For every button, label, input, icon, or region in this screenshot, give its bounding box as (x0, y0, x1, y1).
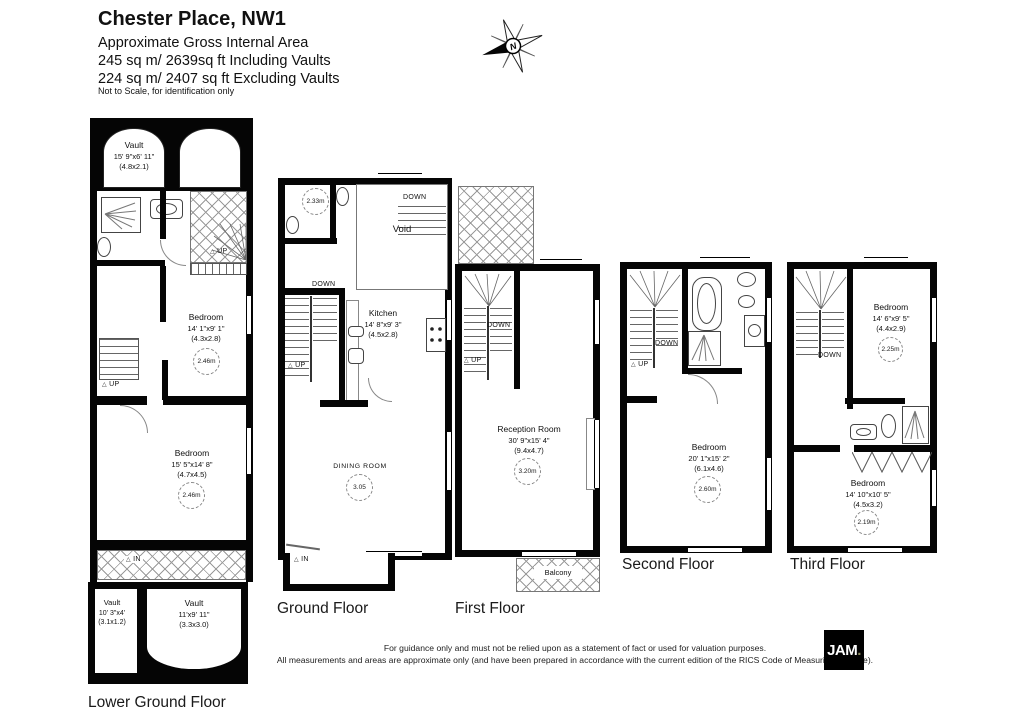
toilet (881, 414, 896, 438)
bathtub (692, 277, 722, 331)
ceiling-height-circle: 2.19m (854, 510, 879, 535)
gross-internal-area-label: Approximate Gross Internal Area (98, 34, 340, 52)
shower-tray (902, 406, 929, 444)
wall (285, 238, 337, 244)
kitchen-appliance (348, 326, 364, 337)
gf-down-top-label: DOWN (403, 194, 426, 201)
void-label: Void (366, 224, 438, 235)
terrace-up-label: △ UP (210, 248, 228, 255)
window (700, 257, 750, 263)
tf-stairs-down-label: DOWN (818, 352, 841, 359)
stair-rail (653, 308, 655, 368)
wardrobe-hanging-icon (852, 452, 932, 478)
window (848, 547, 902, 553)
lg-stairs-up-label: △ UP (102, 381, 120, 388)
disclaimer-line2: All measurements and areas are approxima… (160, 654, 990, 666)
stairs (313, 298, 337, 346)
wall (97, 396, 147, 405)
lg-entrance-label: △ IN (124, 556, 143, 563)
stair-fan (463, 272, 515, 308)
ceiling-height-circle: 3.20m (514, 458, 541, 485)
scale-note: Not to Scale, for identification only (98, 86, 234, 96)
window (378, 173, 422, 179)
jam-logo-text: JAM (827, 642, 857, 659)
kitchen-appliance (348, 348, 364, 364)
wall (845, 398, 905, 404)
disclaimer-line1: For guidance only and must not be relied… (160, 642, 990, 654)
stair-rail (819, 310, 821, 358)
wall (163, 396, 246, 405)
vault-top-right-room (179, 128, 241, 188)
compass-rose-icon: N (478, 14, 548, 80)
window (522, 551, 576, 557)
wall (339, 292, 345, 402)
void-area (356, 184, 448, 290)
wall (246, 548, 253, 582)
ceiling-height-circle: 2.60m (694, 476, 721, 503)
basin (850, 424, 877, 440)
shower-spray-icon (903, 407, 927, 442)
wall (162, 360, 168, 400)
window (766, 458, 772, 510)
roof-area (458, 186, 534, 264)
window (688, 547, 742, 553)
wall (514, 271, 520, 389)
window (246, 428, 252, 474)
stairs-up (99, 338, 139, 380)
room-label-lg-bedroom1: Bedroom 14' 1"x9' 1" (4.3x2.8) (166, 312, 246, 345)
room-label-reception: Reception Room 30' 9"x15' 4" (9.4x4.7) (486, 424, 572, 457)
stairs (822, 312, 844, 348)
window (246, 296, 252, 334)
toilet (737, 272, 756, 287)
room-label-sf-bedroom: Bedroom 20' 1"x15' 2" (6.1x4.6) (668, 442, 750, 475)
room-label-lg-bedroom2: Bedroom 15' 5"x14' 8" (4.7x4.5) (150, 448, 234, 481)
ff-stairs-down-label: DOWN (487, 322, 510, 329)
window (446, 300, 452, 340)
window (931, 470, 937, 506)
ceiling-height-circle: 2.25m (878, 337, 903, 362)
window (864, 257, 908, 263)
area-including-vaults: 245 sq m/ 2639sq ft Including Vaults (98, 52, 340, 70)
window (931, 298, 937, 342)
ceiling-height-circle: 2.46m (193, 348, 220, 375)
window (540, 259, 582, 265)
room-label-vault-left: Vault 10' 3"x4' (3.1x1.2) (88, 598, 136, 628)
jam-logo: JAM. (824, 630, 864, 670)
basin (336, 187, 349, 206)
wall (160, 191, 166, 239)
stair-fan (628, 269, 682, 309)
floor-label-ground: Ground Floor (277, 600, 368, 618)
page-title: Chester Place, NW1 (98, 8, 286, 31)
floorplan-page: Chester Place, NW1 Approximate Gross Int… (0, 0, 1024, 724)
sf-stairs-up-label: △ UP (631, 361, 649, 368)
wall (847, 269, 853, 409)
wall (90, 548, 97, 582)
header-subtitle: Approximate Gross Internal Area 245 sq m… (98, 34, 340, 88)
vanity-basin (744, 315, 765, 347)
wall (330, 182, 336, 240)
floor-label-second: Second Floor (622, 556, 714, 574)
stairs (630, 310, 652, 366)
hob-burners-icon (427, 319, 445, 350)
window (766, 298, 772, 342)
wall (90, 540, 253, 550)
stair-rail (310, 296, 312, 382)
wall (285, 288, 345, 295)
sf-stairs-down-label: DOWN (655, 340, 678, 347)
floor-label-lower-ground: Lower Ground Floor (88, 694, 226, 712)
gf-stairs-up-label: △ UP (288, 362, 306, 369)
step-strip (190, 263, 247, 275)
ceiling-height-circle: 2.46m (178, 482, 205, 509)
toilet (286, 216, 299, 234)
room-label-vault-top: Vault 15' 9"x6' 11" (4.8x2.1) (96, 140, 172, 173)
ff-stairs-up-label: △ UP (464, 357, 482, 364)
shower-spray-icon (102, 198, 140, 231)
disclaimer: For guidance only and must not be relied… (160, 642, 990, 666)
ceiling-height-circle: 3.05 (346, 474, 373, 501)
wall (854, 445, 932, 452)
shower-tray (688, 331, 721, 366)
entrance-walkway (97, 550, 246, 580)
jam-logo-dot: . (857, 642, 861, 659)
wall (320, 400, 368, 407)
toilet (97, 237, 111, 257)
window (594, 420, 600, 488)
stairs (490, 308, 512, 352)
wall (682, 368, 742, 374)
window (446, 432, 452, 490)
wall (97, 260, 165, 266)
shower-spray-icon (689, 332, 719, 364)
room-label-tf-bedroom1: Bedroom 14' 6"x9' 5" (4.4x2.9) (852, 302, 930, 335)
room-label-vault-right: Vault 11'x9' 11" (3.3x3.0) (148, 598, 240, 631)
room-label-dining: DINING ROOM (318, 463, 402, 470)
floor-label-first: First Floor (455, 600, 525, 618)
bidet (738, 295, 755, 308)
hob (426, 318, 446, 352)
stairs (464, 308, 486, 378)
shower-tray (101, 197, 141, 233)
wall (627, 396, 657, 403)
basin (150, 199, 183, 219)
stair-fan (794, 269, 848, 311)
room-label-tf-bedroom2: Bedroom 14' 10"x10' 5" (4.5x3.2) (826, 478, 910, 511)
balcony-label: Balcony (534, 566, 582, 579)
ceiling-height-circle: 2.33m (302, 188, 329, 215)
wall (794, 445, 840, 452)
floor-label-third: Third Floor (790, 556, 865, 574)
gf-stairs-down-label: DOWN (312, 281, 335, 288)
gf-entrance-label: △ IN (294, 556, 309, 563)
window (594, 300, 600, 344)
stair-rail (487, 306, 489, 380)
stairs (796, 312, 818, 356)
stair-fan (210, 222, 248, 262)
